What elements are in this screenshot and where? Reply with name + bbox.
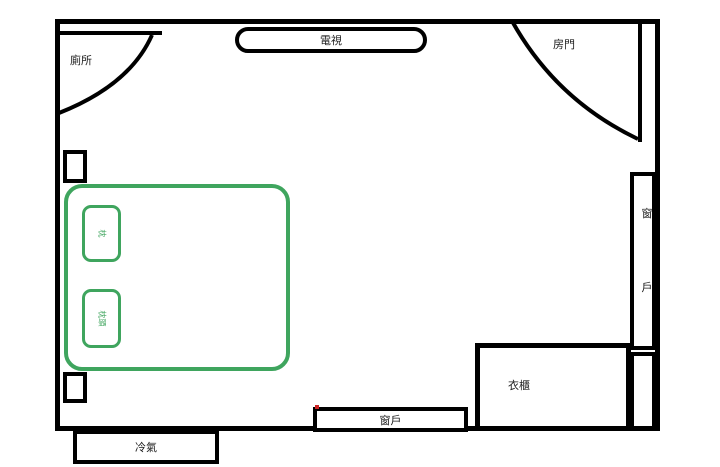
pillow-1-label: 枕 [96,230,107,238]
tv-label: 電視 [320,32,342,48]
red-mark-dot [315,405,319,409]
window-right-box: 窗 戶 [630,172,656,350]
window-bottom-box: 窗戶 [313,407,468,432]
wall-column-below-window [630,352,656,430]
pillow-2-label: 枕頭 [96,311,107,327]
window-right-label-char2: 戶 [634,279,660,295]
nightstand-bottom-box [63,372,87,403]
toilet-label: 廁所 [70,56,92,67]
pillow-2-box: 枕頭 [82,289,121,348]
aircon-label: 冷氣 [135,439,157,455]
tv-box: 電視 [235,27,427,53]
bedroom-door-label: 房門 [553,40,575,51]
wardrobe-label: 衣櫃 [508,377,530,393]
nightstand-top-box [63,150,87,183]
window-right-label-char1: 窗 [634,205,660,221]
aircon-box: 冷氣 [73,430,219,464]
floor-plan-canvas: 廁所 房門 電視 窗 戶 衣櫃 窗戶 冷氣 枕 枕頭 [0,0,720,467]
bed-outline: 枕 枕頭 [64,184,290,371]
pillow-1-box: 枕 [82,205,121,262]
wardrobe-box: 衣櫃 [475,343,631,431]
window-bottom-label: 窗戶 [380,412,402,428]
